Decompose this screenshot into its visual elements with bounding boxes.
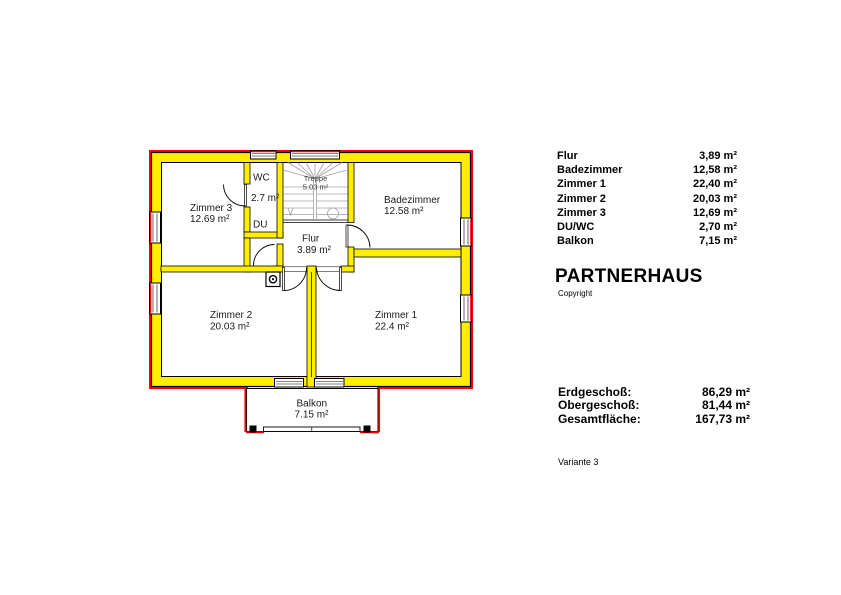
label-du: DU xyxy=(253,220,267,231)
label-flur-name: Flur xyxy=(302,234,320,245)
label-zimmer3-area: 12.69 m² xyxy=(190,214,230,225)
label-zimmer2-area: 20.03 m² xyxy=(210,322,250,333)
room-label: DU/WC xyxy=(557,220,594,234)
room-label: Zimmer 1 xyxy=(557,177,606,191)
summary-value: 167,73 m² xyxy=(695,413,750,426)
room-value: 12,69 m² xyxy=(693,206,737,220)
window-left-zimmer2 xyxy=(150,283,161,314)
window-bottom-left xyxy=(275,379,304,388)
label-zimmer3-name: Zimmer 3 xyxy=(190,203,233,214)
room-label: Flur xyxy=(557,149,578,163)
room-value: 7,15 m² xyxy=(699,234,737,248)
project-title: PARTNERHAUS xyxy=(555,266,703,288)
room-area-row: Balkon7,15 m² xyxy=(557,234,737,248)
label-badezimmer-name: Badezimmer xyxy=(384,195,441,206)
room-label: Zimmer 3 xyxy=(557,206,606,220)
room-area-list: Flur3,89 m² Badezimmer12,58 m² Zimmer 12… xyxy=(557,149,737,248)
variant-note: Variante 3 xyxy=(558,457,598,467)
room-area-row: Zimmer 312,69 m² xyxy=(557,206,737,220)
summary-row: Obergeschoß:81,44 m² xyxy=(558,399,750,412)
room-value: 20,03 m² xyxy=(693,192,737,206)
room-area-row: Flur3,89 m² xyxy=(557,149,737,163)
room-label: Zimmer 2 xyxy=(557,192,606,206)
summary-label: Erdgeschoß: xyxy=(558,386,631,399)
summary-label: Gesamtfläche: xyxy=(558,413,641,426)
window-left-zimmer3 xyxy=(150,212,161,243)
lamp-symbol-icon xyxy=(266,272,280,287)
floor-plan-sheet: Zimmer 3 12.69 m² WC 2.7 m² DU Treppe 5.… xyxy=(0,0,841,595)
room-area-row: DU/WC2,70 m² xyxy=(557,220,737,234)
label-balkon-area: 7.15 m² xyxy=(295,410,330,421)
area-summary: Erdgeschoß:86,29 m² Obergeschoß:81,44 m²… xyxy=(558,386,750,426)
label-balkon-name: Balkon xyxy=(297,399,328,410)
label-zimmer1-area: 22.4 m² xyxy=(375,322,410,333)
window-bottom-right xyxy=(315,379,345,388)
label-badezimmer-area: 12.58 m² xyxy=(384,206,424,217)
floor-plan-drawing: Zimmer 3 12.69 m² WC 2.7 m² DU Treppe 5.… xyxy=(0,0,841,595)
label-wc: WC xyxy=(253,173,270,184)
room-value: 3,89 m² xyxy=(699,149,737,163)
summary-row: Erdgeschoß:86,29 m² xyxy=(558,386,750,399)
summary-value: 86,29 m² xyxy=(702,386,750,399)
label-wc-area: 2.7 m² xyxy=(251,193,280,204)
room-area-row: Zimmer 122,40 m² xyxy=(557,177,737,191)
room-value: 2,70 m² xyxy=(699,220,737,234)
window-top-large xyxy=(291,151,340,160)
room-value: 12,58 m² xyxy=(693,163,737,177)
room-label: Badezimmer xyxy=(557,163,622,177)
window-right-zimmer1 xyxy=(461,295,472,322)
label-zimmer2-name: Zimmer 2 xyxy=(210,310,253,321)
room-area-row: Zimmer 220,03 m² xyxy=(557,192,737,206)
summary-value: 81,44 m² xyxy=(702,399,750,412)
label-treppe-area: 5.03 m² xyxy=(303,183,329,192)
copyright-note: Copyright xyxy=(558,289,592,298)
room-label: Balkon xyxy=(557,234,594,248)
window-right-badezimmer xyxy=(461,218,472,246)
room-area-row: Badezimmer12,58 m² xyxy=(557,163,737,177)
room-value: 22,40 m² xyxy=(693,177,737,191)
label-flur-area: 3.89 m² xyxy=(297,245,332,256)
summary-row: Gesamtfläche:167,73 m² xyxy=(558,413,750,426)
window-top-small xyxy=(251,151,277,160)
label-zimmer1-name: Zimmer 1 xyxy=(375,310,418,321)
summary-label: Obergeschoß: xyxy=(558,399,639,412)
